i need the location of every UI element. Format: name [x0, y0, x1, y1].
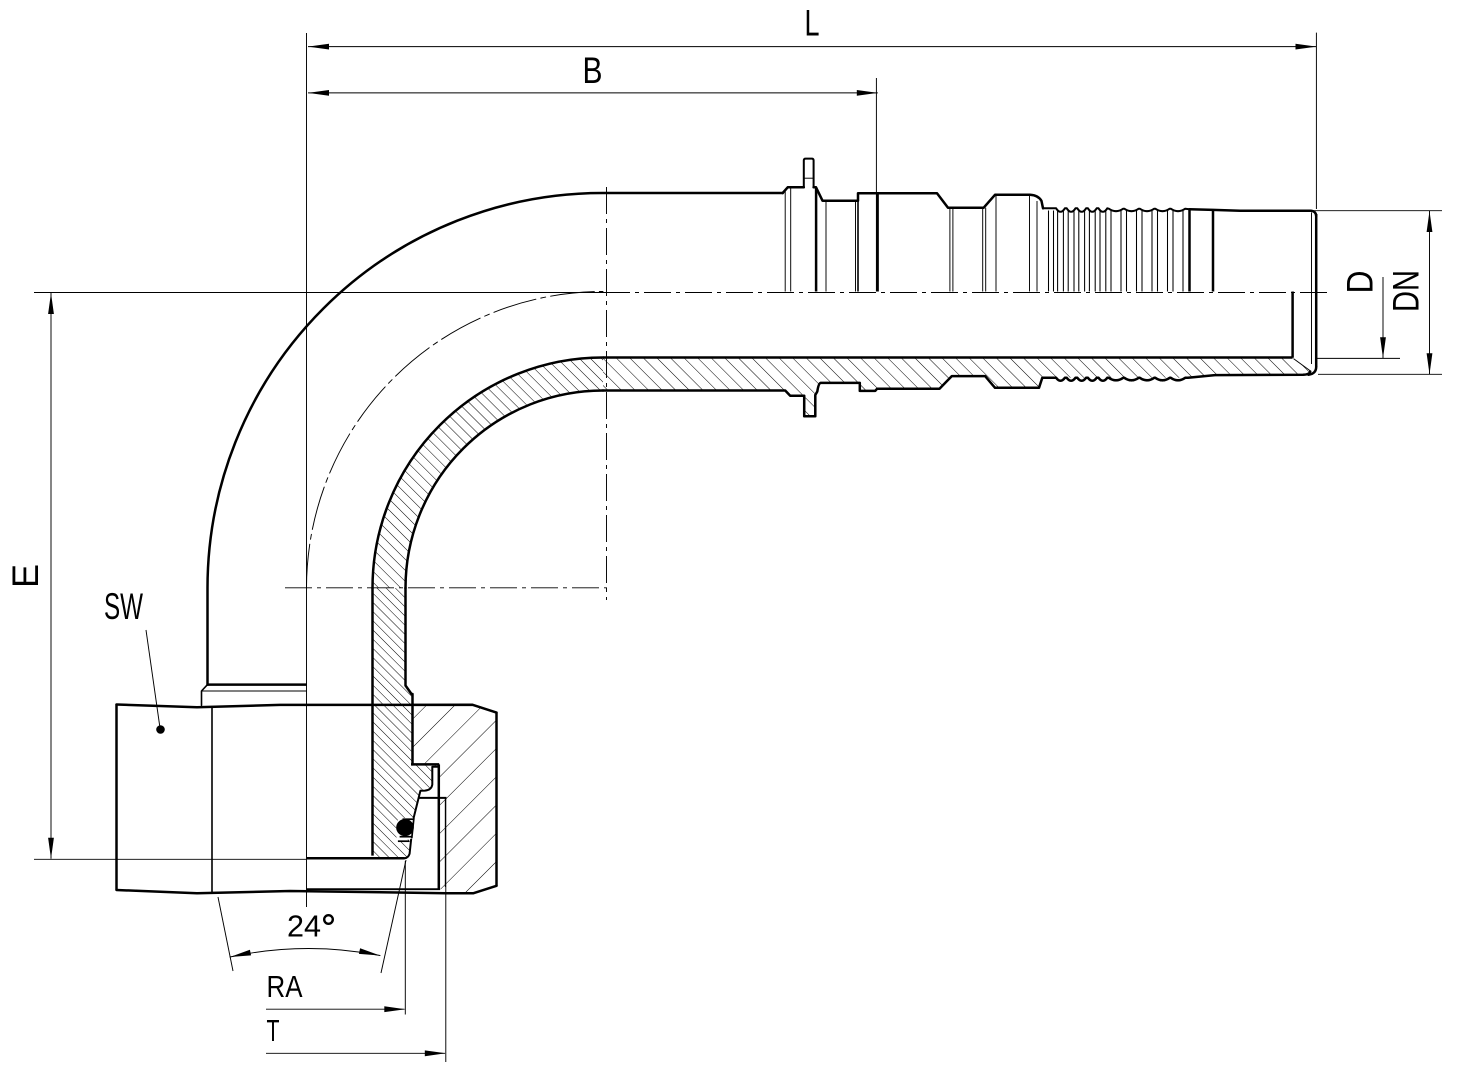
svg-text:B: B [583, 50, 603, 91]
svg-text:E: E [5, 564, 46, 588]
svg-text:T: T [267, 1013, 280, 1048]
svg-text:SW: SW [104, 586, 143, 627]
svg-text:D: D [1340, 271, 1381, 294]
svg-text:24: 24 [287, 909, 321, 944]
svg-text:DN: DN [1386, 270, 1427, 312]
svg-text:RA: RA [267, 969, 303, 1004]
svg-text:L: L [805, 3, 820, 44]
